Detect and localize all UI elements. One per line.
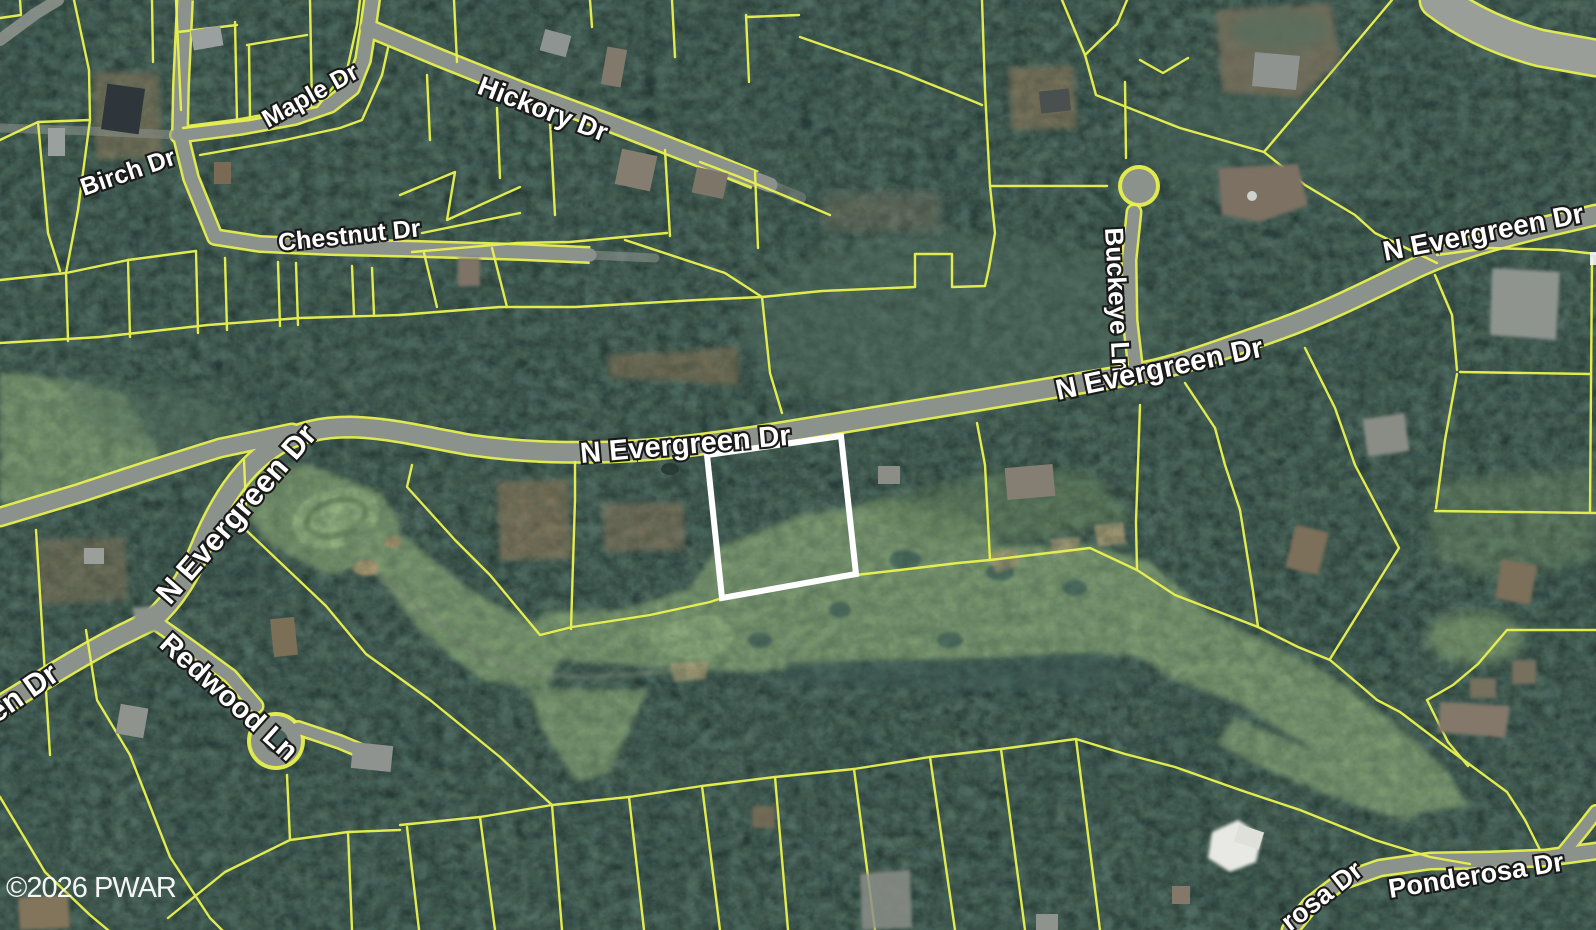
svg-text:©2026 PWAR: ©2026 PWAR: [6, 872, 176, 904]
